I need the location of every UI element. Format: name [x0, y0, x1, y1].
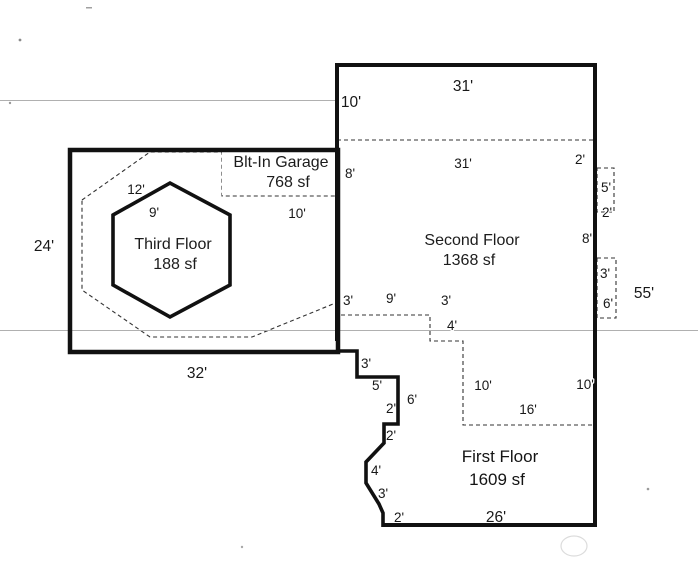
- garage-label: Blt-In Garage: [233, 154, 328, 171]
- dim-hex-inner: 9': [149, 205, 159, 220]
- second-floor-label: Second Floor: [424, 232, 520, 249]
- dim-second-bottom-a: 3': [343, 293, 353, 308]
- dim-garage-left-side: 24': [34, 238, 54, 255]
- dim-ext-bottom: 16': [519, 402, 537, 417]
- dim-second-bottom-b: 9': [386, 291, 396, 306]
- dim-second-top-width: 31': [454, 156, 472, 171]
- dim-ext-left: 10': [474, 378, 492, 393]
- first-floor-label: First Floor: [462, 447, 539, 466]
- scan-speck-2: [9, 102, 11, 104]
- dim-bump1-b: 2': [602, 205, 612, 220]
- floorplan-svg: 31' 10' 8' 31' 2' Second Floor 1368 sf 3…: [0, 0, 698, 569]
- dim-stair-d: 2': [386, 428, 396, 443]
- dim-notch: 4': [447, 318, 457, 333]
- scan-speck-1: [19, 39, 22, 42]
- dim-bump2-b: 6': [603, 296, 613, 311]
- hatch-overlays: [82, 140, 616, 425]
- dim-ext-right: 10': [576, 377, 594, 392]
- dim-garage-band: 10': [288, 206, 306, 221]
- third-floor-label: Third Floor: [134, 236, 212, 253]
- dim-garage-bottom: 32': [187, 365, 207, 382]
- dim-upper-left-side: 10': [341, 94, 361, 111]
- dim-stair-b: 5': [372, 378, 382, 393]
- dim-top-width: 31': [453, 78, 473, 95]
- first-floor-area: 1609 sf: [469, 470, 525, 489]
- dim-stair-side: 6': [407, 392, 417, 407]
- dim-bump1-a: 5': [601, 180, 611, 195]
- dim-stair-e: 4': [371, 463, 381, 478]
- dim-second-top-right: 2': [575, 152, 585, 167]
- scan-speck-5: [241, 546, 243, 548]
- dim-stair-g: 2': [394, 510, 404, 525]
- scan-circle: [561, 536, 587, 556]
- dim-first-bottom: 26': [486, 509, 506, 526]
- garage-area: 768 sf: [266, 174, 310, 191]
- dim-stair-a: 3': [361, 356, 371, 371]
- labels: 31' 10' 8' 31' 2' Second Floor 1368 sf 3…: [34, 78, 654, 526]
- scan-speck-3: [86, 7, 92, 9]
- second-floor-area: 1368 sf: [443, 252, 496, 269]
- dim-right-mid: 8': [582, 231, 592, 246]
- dim-bump2-a: 3': [600, 266, 610, 281]
- dim-stair-c: 2': [386, 401, 396, 416]
- scan-speck-4: [647, 488, 650, 491]
- dim-stair-f: 3': [378, 486, 388, 501]
- dim-second-left-top: 8': [345, 166, 355, 181]
- third-floor-area: 188 sf: [153, 256, 197, 273]
- dim-right-total: 55': [634, 285, 654, 302]
- dim-second-bottom-c: 3': [441, 293, 451, 308]
- dim-hex-top: 12': [127, 182, 145, 197]
- floorplan-sketch: 31' 10' 8' 31' 2' Second Floor 1368 sf 3…: [0, 0, 698, 569]
